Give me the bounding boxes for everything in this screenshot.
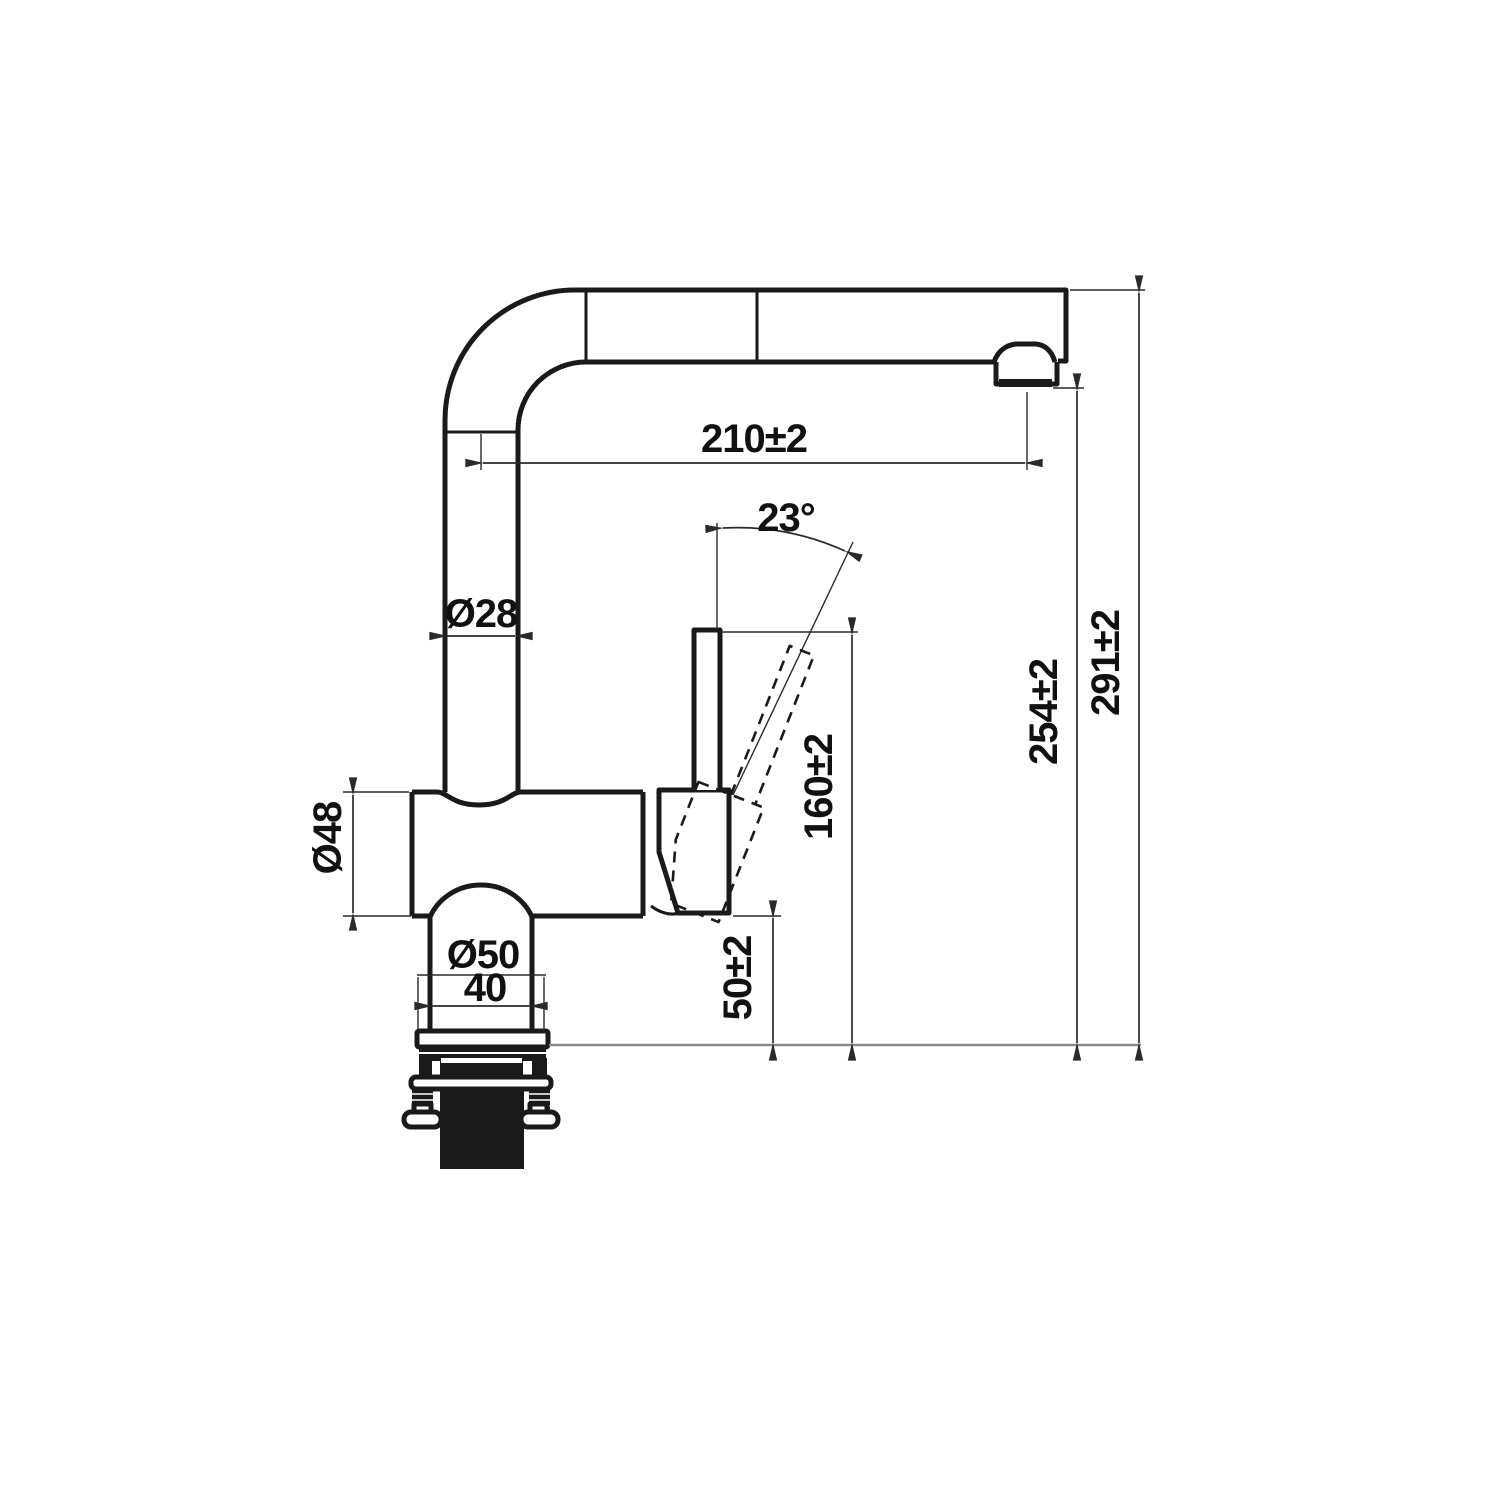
dimension-spout-reach: 210±2 [481, 392, 1027, 470]
valve-head [651, 790, 729, 914]
dimension-base: Ø50 40 [417, 933, 546, 1031]
outlet-height-label: 254±2 [1022, 659, 1066, 765]
dimension-overall-height: 291±2 [1070, 290, 1145, 1043]
dimension-base-height: 50±2 [716, 916, 781, 1043]
mounting-hardware [404, 1031, 558, 1169]
dimension-body-diameter: Ø48 [306, 792, 411, 916]
base-height-label: 50±2 [716, 936, 760, 1021]
spout-reach-label: 210±2 [701, 417, 807, 461]
faucet-outline [412, 290, 1066, 1031]
aerator-nozzle [994, 344, 1057, 387]
mounting-band [419, 1058, 547, 1077]
dimension-outlet-height: 254±2 [1022, 388, 1084, 1043]
base-width-label: 40 [464, 966, 507, 1010]
pipe-diameter-label: Ø28 [445, 592, 518, 636]
foam-seal-block [440, 1087, 524, 1169]
overall-height-label: 291±2 [1084, 610, 1128, 716]
washer-plate [411, 1077, 551, 1089]
handle-angle-label: 23° [757, 496, 815, 540]
aerator-outlet-screen [999, 379, 1052, 387]
technical-drawing-page: 210±2 23° Ø28 Ø48 Ø50 40 [0, 0, 1500, 1500]
gasket [419, 1048, 546, 1058]
handle-height-label: 160±2 [797, 734, 841, 840]
body-diameter-label: Ø48 [306, 801, 350, 874]
mounting-flange [417, 1031, 548, 1047]
dimension-pipe-diameter: Ø28 [445, 592, 518, 636]
spout-arm-outline [445, 290, 1066, 792]
handle-lever [694, 630, 720, 790]
faucet-technical-drawing: 210±2 23° Ø28 Ø48 Ø50 40 [0, 0, 1500, 1500]
